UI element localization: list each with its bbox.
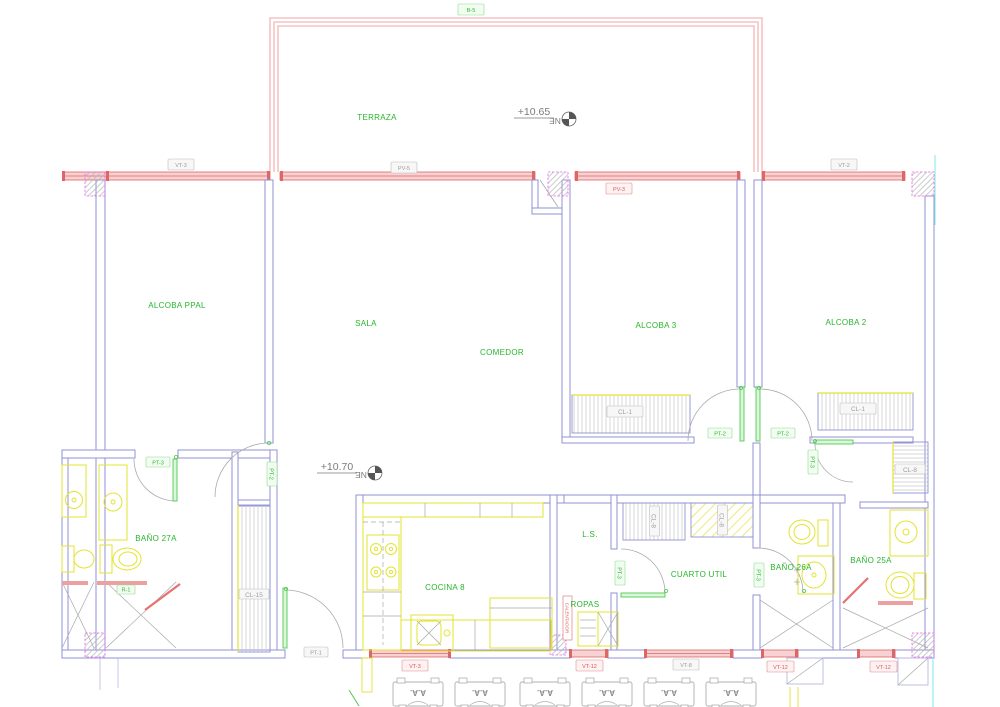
closet-cl1-label: CL-1 xyxy=(851,406,865,413)
kitchen-appliance xyxy=(490,598,552,648)
north-arrow-icon xyxy=(368,466,382,480)
tag-pt3: PT-3 xyxy=(809,456,815,468)
closet-cl15-label: CL-15 xyxy=(245,592,263,599)
room-label-alcoba-2: ALCOBA 2 xyxy=(825,318,866,327)
tag-pv5: PV-5 xyxy=(398,166,410,172)
closet-cl8-right: CL-8 xyxy=(893,442,928,493)
level-value: +10.65 xyxy=(518,106,551,118)
bathroom-26a-fixtures xyxy=(760,520,834,648)
room-label-alcoba-ppal: ALCOBA PPAL xyxy=(148,301,206,310)
ac-unit: A.A. xyxy=(393,678,443,707)
room-label-alcoba-3: ALCOBA 3 xyxy=(635,321,676,330)
north-label: NE xyxy=(355,470,367,480)
north-arrow-icon xyxy=(562,112,576,126)
closet-cl8-label: CL-8 xyxy=(903,467,917,474)
terrace-walls xyxy=(270,18,762,172)
north-label: NE xyxy=(549,116,561,126)
svg-text:A.A.: A.A. xyxy=(537,688,553,697)
tag-pt3: PT-3 xyxy=(152,461,164,467)
room-label-cuarto-util: CUARTO UTIL xyxy=(671,570,728,579)
ac-units: A.A. A.A. A.A. A.A. A.A. xyxy=(393,678,756,707)
room-label-ls: L.S. xyxy=(582,530,597,539)
tag-pt3: PT-3 xyxy=(755,569,761,581)
calentador-label: CALENTADOR xyxy=(565,603,570,634)
tag-pt2: PT-2 xyxy=(777,432,789,438)
top-windows xyxy=(62,171,905,181)
bathroom-25a-fixtures xyxy=(843,510,928,648)
tag-pt2: PT-2 xyxy=(268,468,274,480)
closet-cl1-alcoba2: CL-1 xyxy=(818,393,913,430)
tag-vt2: VT-2 xyxy=(838,163,850,169)
tag-vt3-top: VT-3 xyxy=(175,163,187,169)
closet-cl8-label: CL-8 xyxy=(718,513,725,527)
closet-cl1-alcoba3: CL-1 xyxy=(572,395,690,433)
ac-unit: A.A. xyxy=(706,678,756,707)
level-mark-interior: +10.70 NE xyxy=(317,461,382,480)
svg-text:A.A.: A.A. xyxy=(661,688,677,697)
room-label-cocina-8: COCINA 8 xyxy=(425,583,465,592)
shower-sill xyxy=(62,581,88,585)
room-label-terraza: TERRAZA xyxy=(357,113,397,122)
ac-unit: A.A. xyxy=(644,678,694,707)
tag-vt12: VT-12 xyxy=(876,665,891,671)
tag-vt3-bottom: VT-3 xyxy=(409,664,421,670)
tag-pv3: PV-3 xyxy=(613,187,625,193)
tag-r1: R-1 xyxy=(122,588,131,594)
walls xyxy=(62,180,934,658)
tag-b5: B-5 xyxy=(467,8,476,14)
tag-pt3: PT-3 xyxy=(616,567,622,579)
tag-vt12: VT-12 xyxy=(582,664,597,670)
tag-pt1: PT-1 xyxy=(310,651,322,657)
kitchen-fixtures xyxy=(363,503,552,651)
tag-vt8: VT-8 xyxy=(680,663,692,669)
room-label-sala: SALA xyxy=(355,319,377,328)
level-value: +10.70 xyxy=(321,461,354,473)
washer xyxy=(578,612,598,646)
tag-pt2: PT-2 xyxy=(714,432,726,438)
svg-text:A.A.: A.A. xyxy=(410,688,426,697)
tag-vt12: VT-12 xyxy=(773,665,788,671)
svg-text:A.A.: A.A. xyxy=(599,688,615,697)
svg-text:A.A.: A.A. xyxy=(723,688,739,697)
shower-sill xyxy=(97,581,147,585)
room-label-ropas: ROPAS xyxy=(571,600,600,609)
room-label-bano-25a: BAÑO 25A xyxy=(850,556,892,565)
construction-lines xyxy=(100,155,935,707)
level-mark-terrace: +10.65 NE xyxy=(514,106,576,126)
ac-unit: A.A. xyxy=(582,678,632,707)
ac-unit: A.A. xyxy=(520,678,570,707)
floor-plan-drawing: CL-1 CL-1 CL-8 CL-15 CL-8 CL-8 xyxy=(0,0,1000,707)
closet-cl15: CL-15 xyxy=(238,505,270,652)
closet-cl8-label: CL-8 xyxy=(650,514,657,528)
room-label-bano-26a: BAÑO 26A xyxy=(770,563,812,572)
bathroom-27a-fixtures xyxy=(62,465,180,648)
closet-cl8-cuarto-util-b: CL-8 xyxy=(691,503,753,537)
closet-cl1-label: CL-1 xyxy=(618,409,632,416)
ac-unit: A.A. xyxy=(455,678,505,707)
svg-text:A.A.: A.A. xyxy=(472,688,488,697)
floor-plan-canvas: CL-1 CL-1 CL-8 CL-15 CL-8 CL-8 xyxy=(0,0,1000,707)
structural-columns xyxy=(85,172,934,657)
room-label-comedor: COMEDOR xyxy=(480,348,524,357)
closet-cl8-cuarto-util-a: CL-8 xyxy=(623,503,685,540)
room-label-bano-27a: BAÑO 27A xyxy=(135,534,177,543)
shower-sill xyxy=(878,601,913,605)
